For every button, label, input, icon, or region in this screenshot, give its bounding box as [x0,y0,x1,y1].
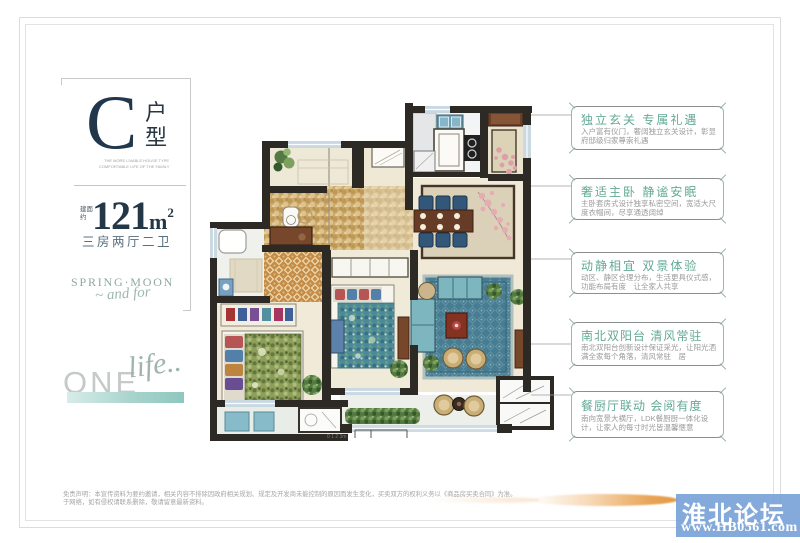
svg-text:0 1 2 3m: 0 1 2 3m [327,434,346,440]
